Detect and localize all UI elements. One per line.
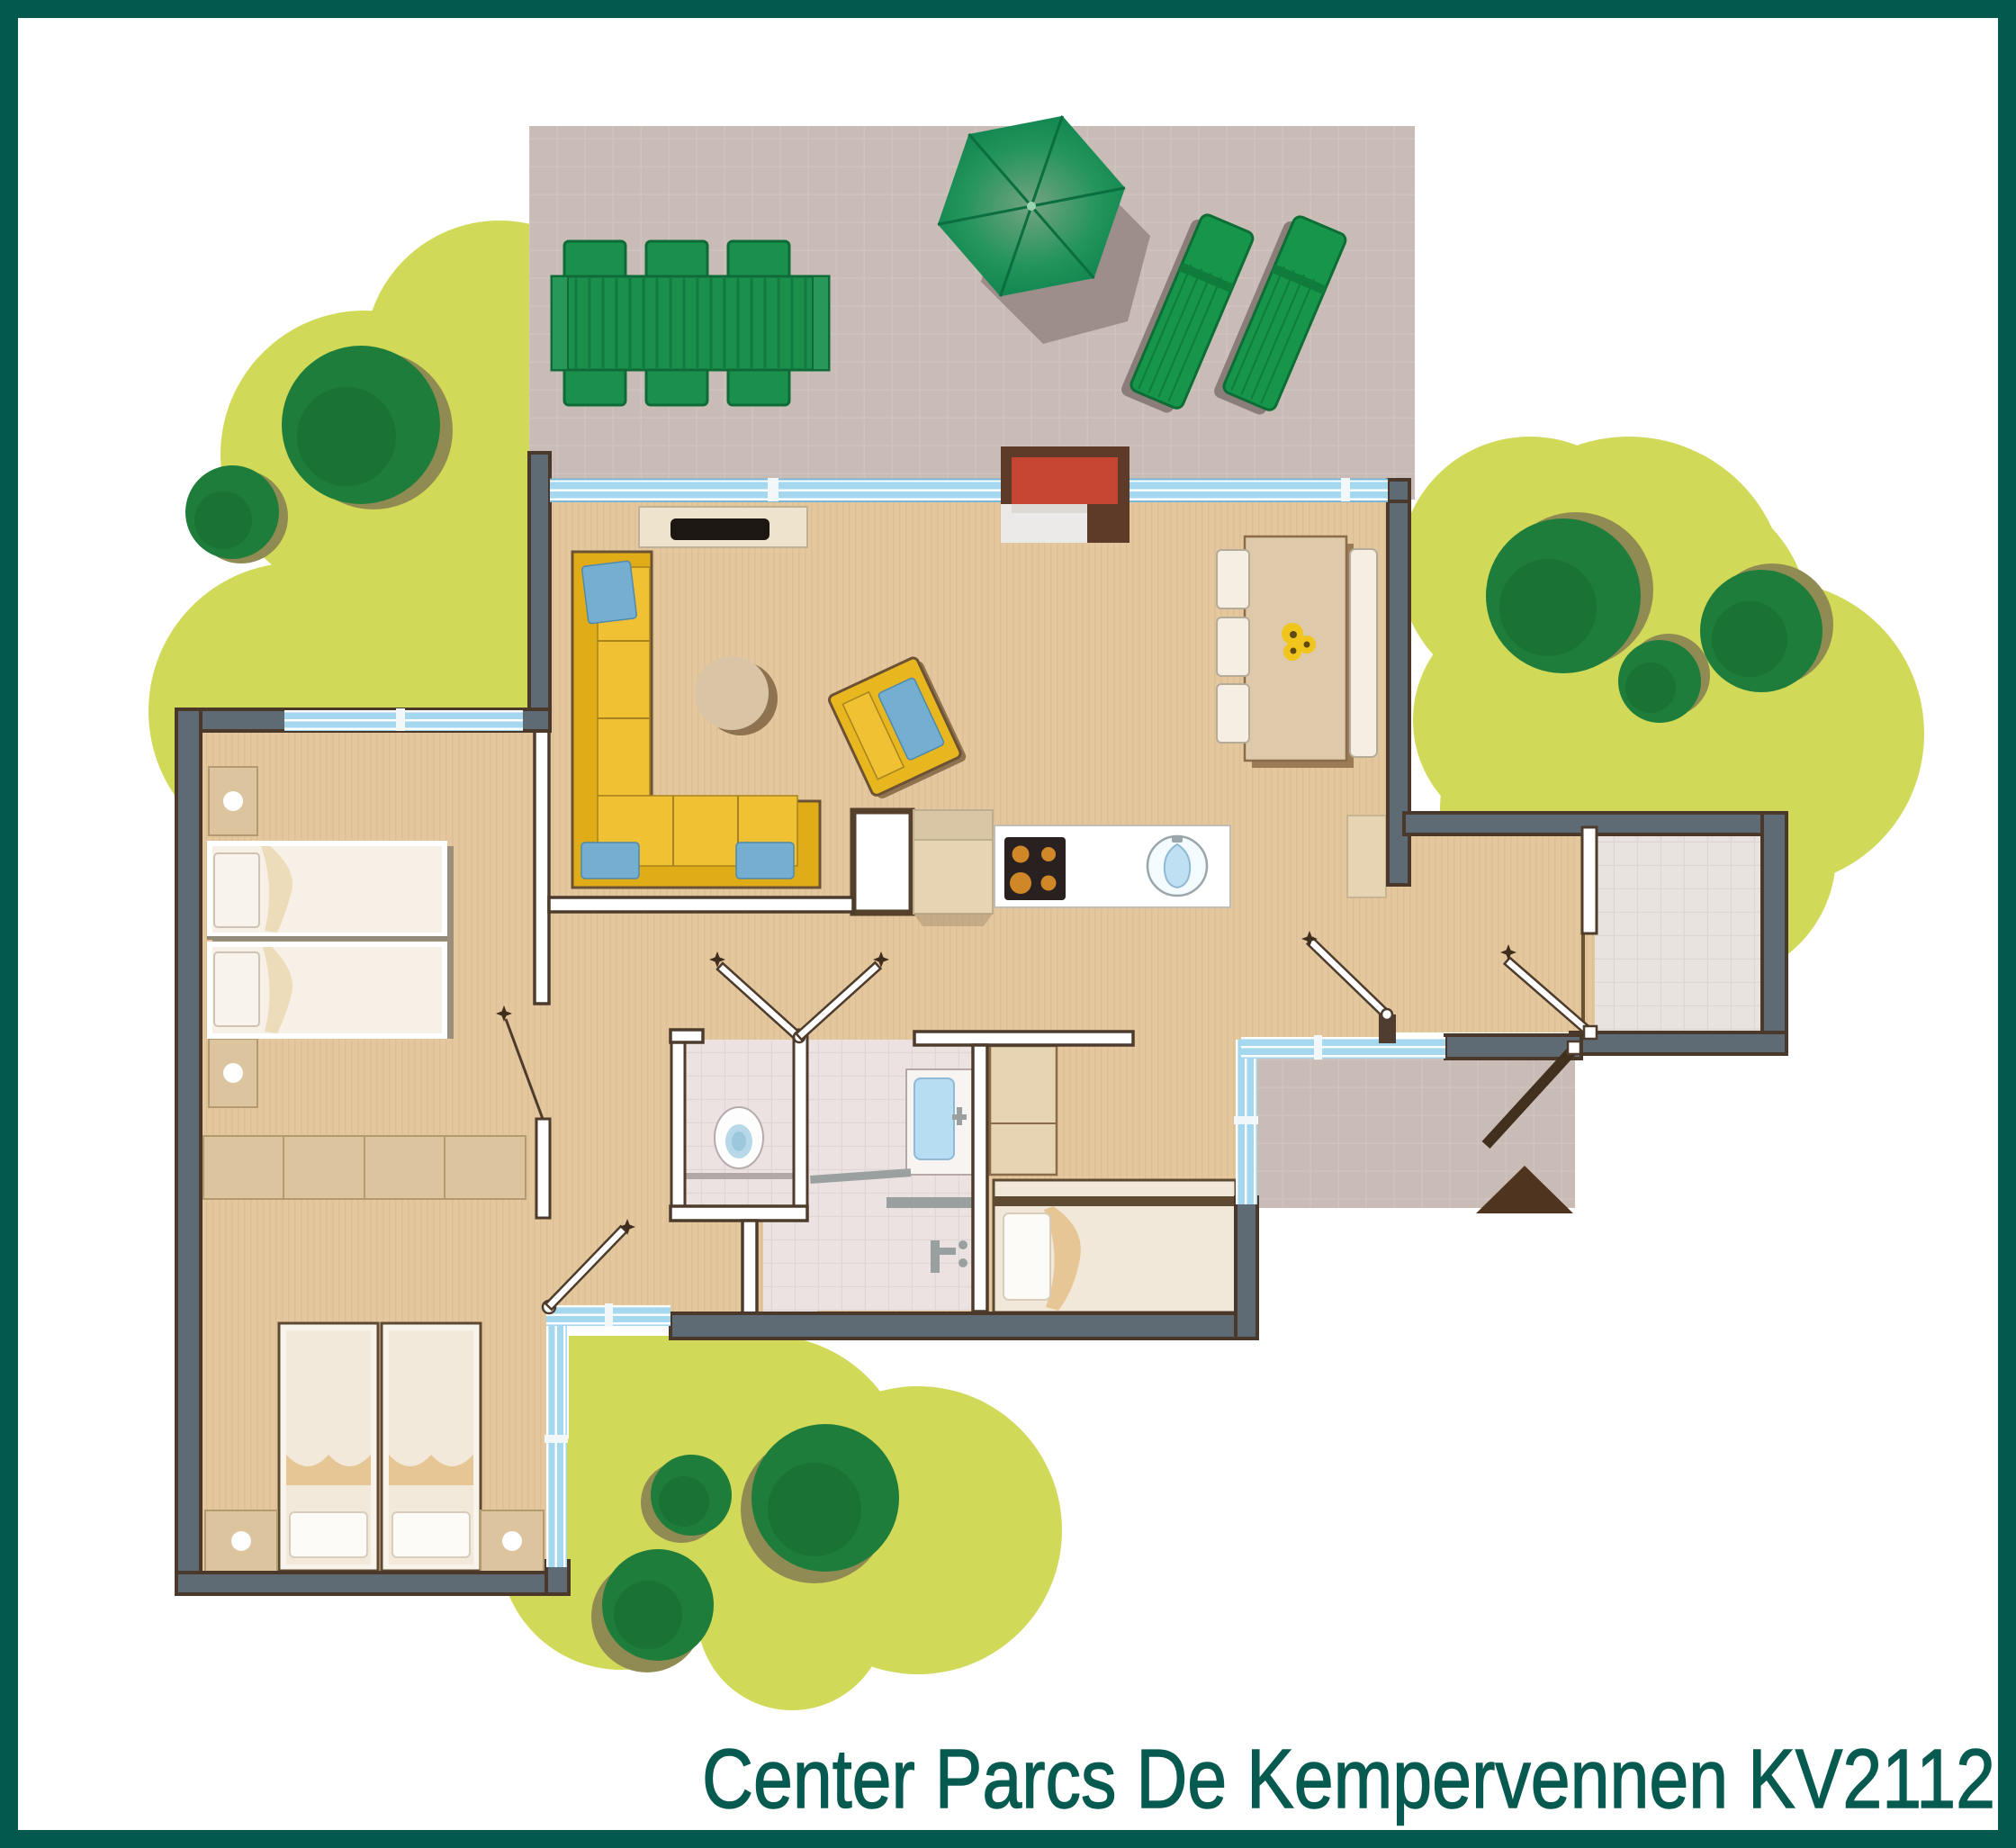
svg-text:Center Parcs De Kempervennen K: Center Parcs De Kempervennen KV2112 — [702, 1732, 1995, 1825]
